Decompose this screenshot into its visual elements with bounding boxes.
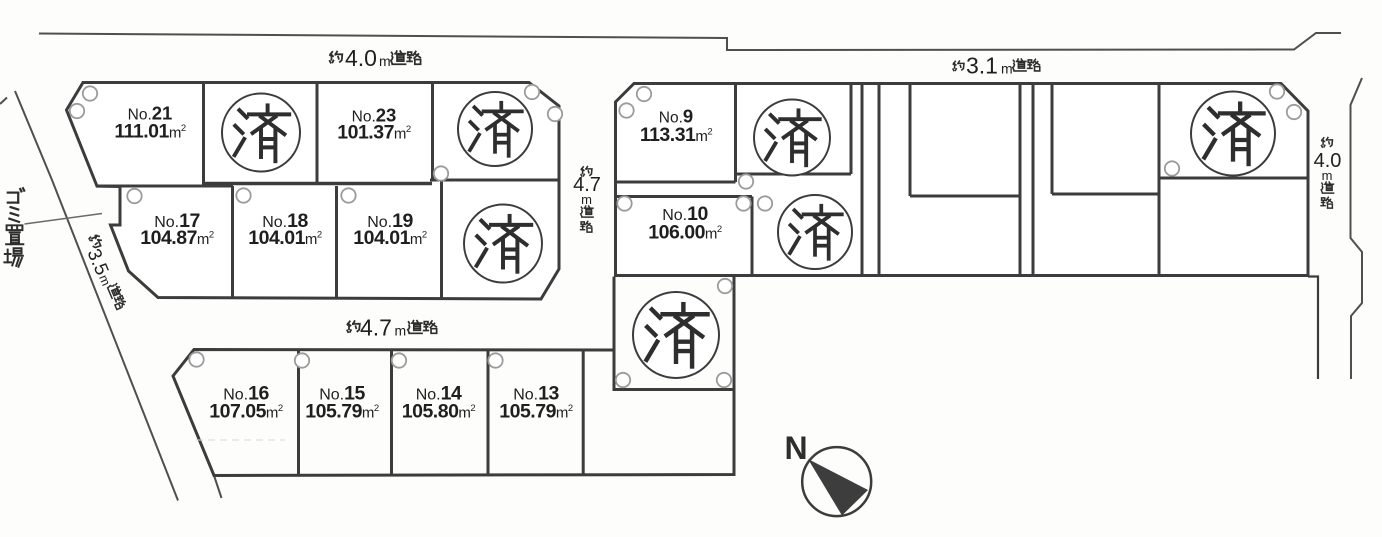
svg-text:4.7: 4.7 [360,315,392,341]
svg-text:113.31m2: 113.31m2 [640,124,713,146]
svg-text:107.05m2: 107.05m2 [209,401,283,423]
svg-text:N: N [784,430,807,466]
svg-text:m: m [1001,61,1013,77]
svg-text:111.01m2: 111.01m2 [114,121,186,143]
svg-text:3.1: 3.1 [966,53,998,79]
svg-text:m: m [379,53,391,69]
svg-text:104.87m2: 104.87m2 [140,227,214,249]
svg-text:m: m [395,323,407,339]
svg-text:m: m [581,192,592,207]
svg-text:106.00m2: 106.00m2 [648,222,722,244]
svg-text:104.01m2: 104.01m2 [353,227,427,249]
svg-text:105.79m2: 105.79m2 [305,401,379,423]
svg-text:m: m [1322,168,1333,183]
svg-text:101.37m2: 101.37m2 [337,122,411,144]
svg-text:104.01m2: 104.01m2 [248,227,322,249]
svg-text:105.79m2: 105.79m2 [499,401,573,423]
svg-text:4.0: 4.0 [345,45,377,71]
svg-text:105.80m2: 105.80m2 [402,401,476,423]
